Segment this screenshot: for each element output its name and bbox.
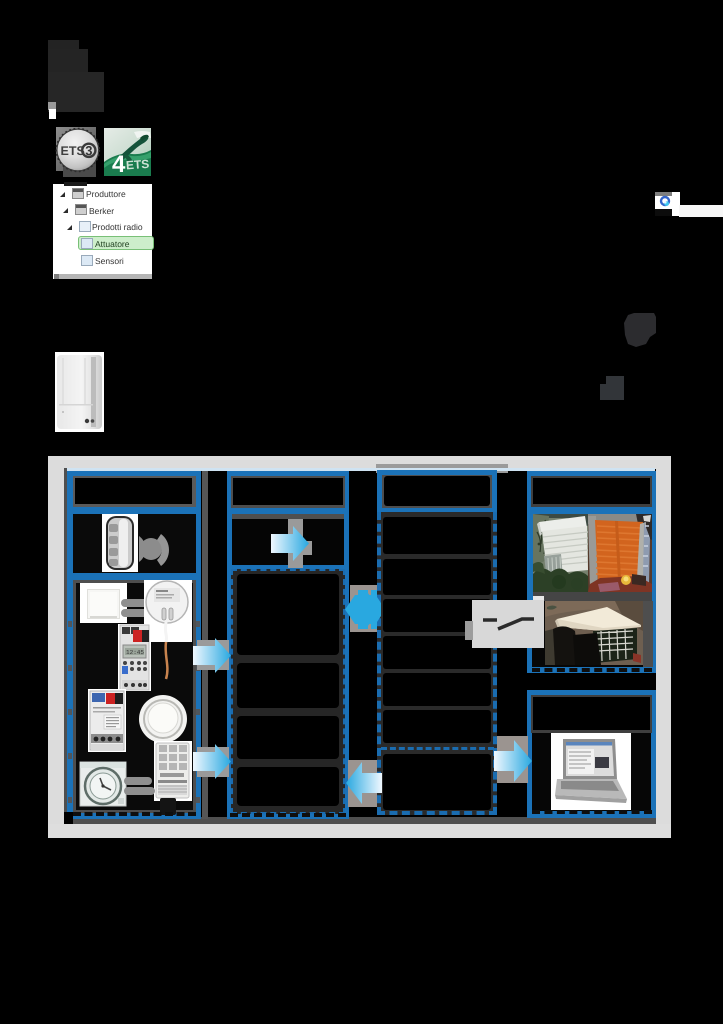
- svg-text:12:45: 12:45: [126, 649, 144, 656]
- svg-text:ETS: ETS: [125, 157, 149, 173]
- svg-text:3: 3: [85, 143, 92, 158]
- svg-text:4: 4: [112, 151, 126, 176]
